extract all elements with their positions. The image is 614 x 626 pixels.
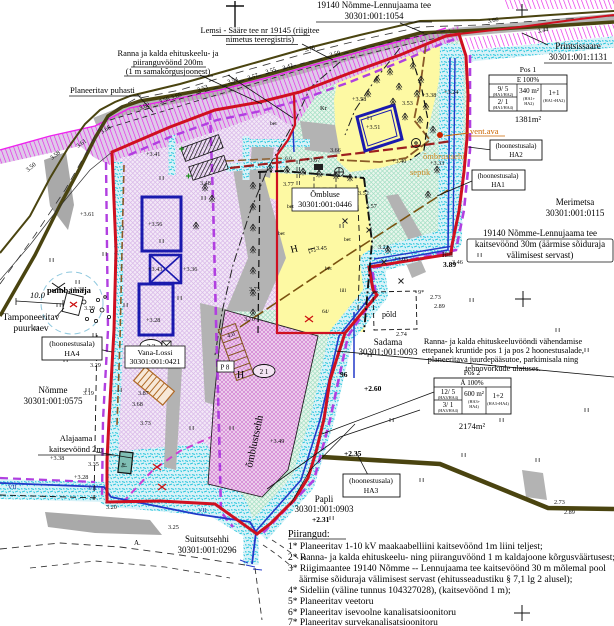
svg-text:+3.61: +3.61 xyxy=(80,211,94,218)
svg-text:1+2: 1+2 xyxy=(493,392,504,400)
svg-text:3.57: 3.57 xyxy=(366,203,377,210)
svg-text:(HA1/HA4): (HA1/HA4) xyxy=(493,105,514,110)
svg-text:piiranguvöönd 200m: piiranguvöönd 200m xyxy=(133,58,204,67)
svg-text:3.66: 3.66 xyxy=(330,147,341,154)
svg-text:Piirangud:: Piirangud: xyxy=(288,529,330,540)
svg-text:Ranna- ja kalda ehituskeeluvöö: Ranna- ja kalda ehituskeeluvööndi vähend… xyxy=(424,337,583,346)
svg-text:2.89: 2.89 xyxy=(564,509,575,516)
svg-text:nimetus teeregistris): nimetus teeregistris) xyxy=(226,35,294,44)
svg-text:600 m²: 600 m² xyxy=(464,390,484,398)
svg-text:6.0: 6.0 xyxy=(285,156,292,162)
svg-text:30301:001:0446: 30301:001:0446 xyxy=(298,200,352,209)
svg-text:3* Riigimaantee 19140 Nõmme --: 3* Riigimaantee 19140 Nõmme -- Lennujaam… xyxy=(288,564,606,574)
svg-text:kaitsevöönd 30m (äärmise sõidu: kaitsevöönd 30m (äärmise sõiduraja xyxy=(475,239,605,249)
svg-text:3.52: 3.52 xyxy=(358,190,369,197)
svg-text:2* Ranna- ja kalda ehituskeelu: 2* Ranna- ja kalda ehituskeelu- ning pii… xyxy=(288,553,614,563)
svg-text:(HA1+HA2): (HA1+HA2) xyxy=(543,98,565,103)
svg-text:30301:001:0903: 30301:001:0903 xyxy=(294,504,354,514)
svg-text:VII: VII xyxy=(8,485,16,491)
svg-text:3.77: 3.77 xyxy=(283,181,294,188)
svg-text:(1 m samakõrgusjoonest): (1 m samakõrgusjoonest) xyxy=(126,67,211,76)
svg-text:10.0: 10.0 xyxy=(30,290,46,300)
svg-text:+3.41: +3.41 xyxy=(146,151,160,158)
svg-text:+3.36: +3.36 xyxy=(183,266,197,273)
svg-text:+3.38: +3.38 xyxy=(70,286,84,293)
svg-text:Pos 1: Pos 1 xyxy=(520,65,537,74)
svg-text:Õmbluse: Õmbluse xyxy=(310,189,340,199)
svg-text:340 m²: 340 m² xyxy=(519,87,539,95)
svg-text:3.29: 3.29 xyxy=(90,362,101,369)
svg-text:bet: bet xyxy=(325,266,332,272)
svg-text:1* Planeeritav 1-10 kV maakaab: 1* Planeeritav 1-10 kV maakaabelliini ka… xyxy=(288,542,543,552)
svg-text:bet: bet xyxy=(270,121,277,127)
svg-text:2.73: 2.73 xyxy=(430,294,441,301)
svg-text:bet: bet xyxy=(344,237,351,243)
svg-text:3.25: 3.25 xyxy=(168,524,179,531)
svg-text:1381m²: 1381m² xyxy=(515,114,542,124)
svg-text:6* Planeeritav isevoolne kanal: 6* Planeeritav isevoolne kanalisatsiooni… xyxy=(288,608,456,618)
svg-text:Sadama: Sadama xyxy=(374,337,403,347)
svg-text:Alajaama: Alajaama xyxy=(60,433,93,443)
svg-text:30301:001:0296: 30301:001:0296 xyxy=(177,545,237,555)
svg-text:3.89: 3.89 xyxy=(443,260,456,269)
svg-text:3.21: 3.21 xyxy=(378,244,389,251)
svg-text:+3.33: +3.33 xyxy=(430,160,444,167)
svg-text:3.73: 3.73 xyxy=(249,286,260,293)
svg-text:välimisest servast): välimisest servast) xyxy=(507,250,574,260)
svg-text:Ranna ja kalda ehituskeelu- ja: Ranna ja kalda ehituskeelu- ja xyxy=(118,49,219,58)
svg-text:HA1: HA1 xyxy=(491,181,505,189)
svg-text:Suitsutsehhi: Suitsutsehhi xyxy=(185,534,230,544)
svg-text:A.: A. xyxy=(134,539,141,547)
svg-text:7* Planeeritav survekanalisats: 7* Planeeritav survekanalisatsioonitoru xyxy=(288,618,438,626)
svg-text:+3.38: +3.38 xyxy=(422,92,436,99)
svg-text:2.74: 2.74 xyxy=(396,331,407,338)
svg-text:(HA1/HA2): (HA1/HA2) xyxy=(493,92,514,97)
svg-text:30301:001:1131: 30301:001:1131 xyxy=(549,52,608,62)
svg-text:HA4): HA4) xyxy=(469,404,479,409)
svg-text:3.87: 3.87 xyxy=(138,390,149,397)
svg-text:+3.28: +3.28 xyxy=(74,474,88,481)
svg-text:30301:001:0421: 30301:001:0421 xyxy=(129,357,180,366)
svg-text:3.20: 3.20 xyxy=(106,504,117,511)
svg-text:+2.60: +2.60 xyxy=(364,384,382,393)
svg-text:2.89: 2.89 xyxy=(434,303,445,310)
svg-text:HA3: HA3 xyxy=(364,486,379,495)
svg-text:4* Sideliin (väline tunnus 104: 4* Sideliin (väline tunnus 104327028), (… xyxy=(288,585,511,596)
svg-text:Tamponeeritav: Tamponeeritav xyxy=(3,313,60,323)
svg-text:96: 96 xyxy=(340,370,348,379)
svg-text:+3.56: +3.56 xyxy=(148,221,162,228)
svg-text:+3.38: +3.38 xyxy=(50,455,64,462)
svg-text:2 1: 2 1 xyxy=(260,368,269,376)
svg-text:19140 Nõmme-Lennujaama tee: 19140 Nõmme-Lennujaama tee xyxy=(483,228,597,238)
svg-text:lill: lill xyxy=(340,288,347,294)
svg-text:+3.58: +3.58 xyxy=(352,96,366,103)
svg-text:Printsissaare: Printsissaare xyxy=(555,41,601,51)
svg-text:H: H xyxy=(237,370,244,381)
svg-text:+3.43: +3.43 xyxy=(148,266,162,273)
svg-text:(HA3+HA4): (HA3+HA4) xyxy=(487,401,509,406)
svg-text:3.73: 3.73 xyxy=(140,420,151,427)
svg-text:3.39: 3.39 xyxy=(84,305,95,312)
svg-text:bet: bet xyxy=(278,231,285,237)
svg-text:30301:001:0115: 30301:001:0115 xyxy=(546,208,605,218)
svg-text:+3.40: +3.40 xyxy=(392,158,406,165)
svg-text:HA4: HA4 xyxy=(64,349,79,358)
svg-text:9*: 9* xyxy=(418,289,424,296)
svg-text:E 100%: E 100% xyxy=(517,76,540,84)
svg-text:30301:001:0575: 30301:001:0575 xyxy=(23,396,83,406)
svg-text:+2.35: +2.35 xyxy=(344,449,362,458)
svg-text:2174m²: 2174m² xyxy=(459,421,486,431)
svg-text:vent.ava: vent.ava xyxy=(470,126,499,136)
svg-text:(HA3/HA4): (HA3/HA4) xyxy=(438,395,459,400)
svg-text:kaitsevöönd 2m: kaitsevöönd 2m xyxy=(49,444,103,454)
svg-text:64/: 64/ xyxy=(322,309,330,315)
svg-text:3.35: 3.35 xyxy=(88,461,99,468)
svg-text:5* Planeeritav veetoru: 5* Planeeritav veetoru xyxy=(288,597,374,607)
svg-text:planeeritava juurdepääsutoe, p: planeeritava juurdepääsutoe, parkimisala… xyxy=(428,355,579,364)
svg-text:septik: septik xyxy=(410,167,431,177)
svg-text:+3.49: +3.49 xyxy=(270,438,284,445)
svg-text:30301:001:1054: 30301:001:1054 xyxy=(344,11,404,21)
svg-text:ettepanek kruntide pos 1 ja po: ettepanek kruntide pos 1 ja pos 2 hoones… xyxy=(422,346,584,355)
svg-text:30301:001:0093: 30301:001:0093 xyxy=(358,347,418,357)
svg-text:VII: VII xyxy=(198,508,206,514)
svg-text:+3.67: +3.67 xyxy=(306,157,320,164)
svg-text:3.53: 3.53 xyxy=(402,100,413,107)
svg-text:2.73: 2.73 xyxy=(554,499,565,506)
svg-text:3.45: 3.45 xyxy=(316,245,327,252)
svg-text:+3.28: +3.28 xyxy=(146,317,160,324)
svg-text:3.48: 3.48 xyxy=(200,180,211,187)
svg-text:Kr: Kr xyxy=(320,105,328,112)
svg-text:Papli: Papli xyxy=(315,494,334,504)
svg-text:äärmise sõiduraja välimisest s: äärmise sõiduraja välimisest servast (eh… xyxy=(299,574,572,585)
svg-text:3.19: 3.19 xyxy=(83,390,94,397)
svg-text:HA2): HA2) xyxy=(524,101,534,106)
svg-text:19140 Nõmme-Lennujaama tee: 19140 Nõmme-Lennujaama tee xyxy=(317,0,431,10)
svg-text:Å 100%: Å 100% xyxy=(460,379,483,387)
svg-text:põld: põld xyxy=(382,310,396,319)
svg-text:+2.31: +2.31 xyxy=(312,515,330,524)
svg-text:VII: VII xyxy=(88,486,96,492)
svg-text:HA2: HA2 xyxy=(509,151,523,159)
svg-text:Vana-Lossi: Vana-Lossi xyxy=(137,348,173,357)
svg-text:Merimetsa: Merimetsa xyxy=(556,197,595,207)
svg-text:(hoonestusala): (hoonestusala) xyxy=(349,476,393,485)
svg-text:Pos 2: Pos 2 xyxy=(464,368,481,377)
svg-text:3.70: 3.70 xyxy=(244,316,255,323)
svg-text:Planeeritav puhasti: Planeeritav puhasti xyxy=(70,85,136,95)
svg-text:+3.24: +3.24 xyxy=(444,89,458,96)
svg-text:1+1: 1+1 xyxy=(549,89,560,97)
svg-text:3.68: 3.68 xyxy=(132,401,143,408)
svg-text:(hoonestusala): (hoonestusala) xyxy=(49,339,95,348)
svg-text:(hoonestusala): (hoonestusala) xyxy=(496,142,537,150)
svg-text:aj: aj xyxy=(120,462,128,468)
svg-text:+3.51: +3.51 xyxy=(366,124,380,131)
svg-text:Hill: Hill xyxy=(442,251,453,259)
svg-text:puurkaev: puurkaev xyxy=(13,324,49,334)
svg-text:(hoonestusala): (hoonestusala) xyxy=(478,172,519,180)
svg-text:bet: bet xyxy=(287,204,294,210)
svg-text:P 8: P 8 xyxy=(221,364,230,372)
svg-text:+3.05: +3.05 xyxy=(394,256,408,263)
svg-text:(HA3/HA4): (HA3/HA4) xyxy=(438,408,459,413)
svg-text:Nõmme: Nõmme xyxy=(39,385,68,395)
svg-text:Lemsi - Sääre tee nr 19145 (ri: Lemsi - Sääre tee nr 19145 (riigitee xyxy=(200,26,319,35)
